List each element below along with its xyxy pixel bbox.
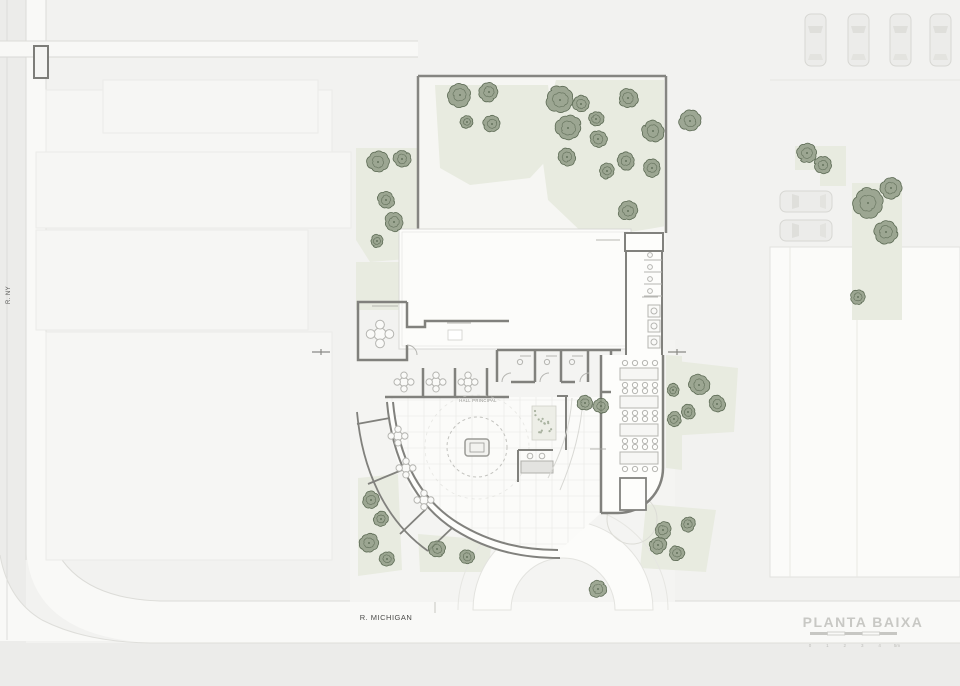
- tree-icon: [667, 383, 679, 396]
- chair-icon: [433, 372, 439, 378]
- tree-icon: [483, 115, 500, 131]
- tree-icon: [681, 517, 695, 532]
- bus-stop-structure: [34, 46, 48, 78]
- chair-icon: [426, 379, 432, 385]
- chair-icon: [421, 490, 427, 496]
- floor-plan-canvas: R. MICHIGAN R. NY HALL PRINCIPAL PLANTA …: [0, 0, 960, 686]
- car-icon: [780, 191, 832, 212]
- neighbor-buildings-left: [36, 80, 351, 560]
- dining-table: [620, 368, 658, 380]
- neighbor-roof: [36, 230, 308, 330]
- tree-icon: [447, 83, 470, 107]
- chair-icon: [401, 372, 407, 378]
- tree-icon: [679, 110, 701, 131]
- car-icon: [848, 14, 869, 66]
- tree-icon: [644, 159, 661, 177]
- chair-icon: [395, 440, 401, 446]
- dining-table: [620, 396, 658, 408]
- chair-icon: [376, 320, 385, 329]
- sidewalk-top: [0, 41, 418, 57]
- dining-vestibule: [620, 478, 646, 510]
- room-furniture: [448, 330, 462, 340]
- tree-icon: [379, 552, 394, 566]
- chair-icon: [376, 339, 385, 348]
- chair-icon: [428, 497, 434, 503]
- neighbor-roof: [103, 80, 318, 133]
- chair-icon: [401, 386, 407, 392]
- scale-tick: 5m: [894, 643, 901, 648]
- scale-bar-segment: [810, 632, 827, 635]
- room-label-hall-principal: HALL PRINCIPAL: [459, 398, 497, 403]
- chair-icon: [396, 465, 402, 471]
- chair-icon: [458, 379, 464, 385]
- tree-icon: [655, 522, 671, 539]
- site-plan-sheet: R. MICHIGAN R. NY HALL PRINCIPAL PLANTA …: [0, 0, 960, 686]
- street-label-michigan: R. MICHIGAN: [360, 613, 413, 622]
- tree-icon: [460, 550, 475, 564]
- tree-icon: [377, 191, 394, 208]
- tree-icon: [589, 580, 607, 597]
- street-bottom-asphalt: [0, 643, 960, 686]
- chair-icon: [403, 458, 409, 464]
- car-icon: [890, 14, 911, 66]
- chair-icon: [408, 379, 414, 385]
- tree-icon: [590, 131, 607, 148]
- neighbor-roof: [36, 152, 351, 228]
- chair-icon: [403, 472, 409, 478]
- tree-icon: [428, 541, 445, 557]
- reception-desk: [521, 461, 553, 473]
- chair-icon: [366, 330, 375, 339]
- sheet-title: PLANTA BAIXA: [803, 614, 924, 630]
- chair-icon: [465, 386, 471, 392]
- tree-icon: [460, 116, 473, 129]
- tree-icon: [371, 234, 383, 247]
- tree-icon: [589, 112, 604, 126]
- chair-icon: [394, 379, 400, 385]
- tree-icon: [572, 95, 589, 112]
- tree-icon: [814, 157, 831, 174]
- scale-bar-segment: [845, 632, 862, 635]
- scale-bar-segment: [880, 632, 897, 635]
- tree-icon: [681, 404, 695, 419]
- tree-icon: [577, 395, 593, 410]
- car-icon: [805, 14, 826, 66]
- chair-icon: [414, 497, 420, 503]
- roof-slab: [399, 229, 631, 349]
- chair-icon: [388, 433, 394, 439]
- chair-icon: [465, 372, 471, 378]
- chair-icon: [402, 433, 408, 439]
- planter-bench: [465, 439, 489, 456]
- car-icon: [780, 220, 832, 241]
- chair-icon: [472, 379, 478, 385]
- neighbor-roof: [46, 332, 332, 560]
- chair-icon: [440, 379, 446, 385]
- stair-box: [625, 233, 663, 251]
- dining-table: [620, 424, 658, 436]
- dining-table: [620, 452, 658, 464]
- chair-icon: [385, 330, 394, 339]
- chair-icon: [421, 504, 427, 510]
- tree-icon: [618, 201, 637, 220]
- chair-icon: [410, 465, 416, 471]
- chair-icon: [433, 386, 439, 392]
- tree-icon: [385, 213, 403, 232]
- street-label-ny: R. NY: [6, 286, 12, 304]
- green-patch: [640, 504, 716, 572]
- chair-icon: [395, 426, 401, 432]
- car-icon: [930, 14, 951, 66]
